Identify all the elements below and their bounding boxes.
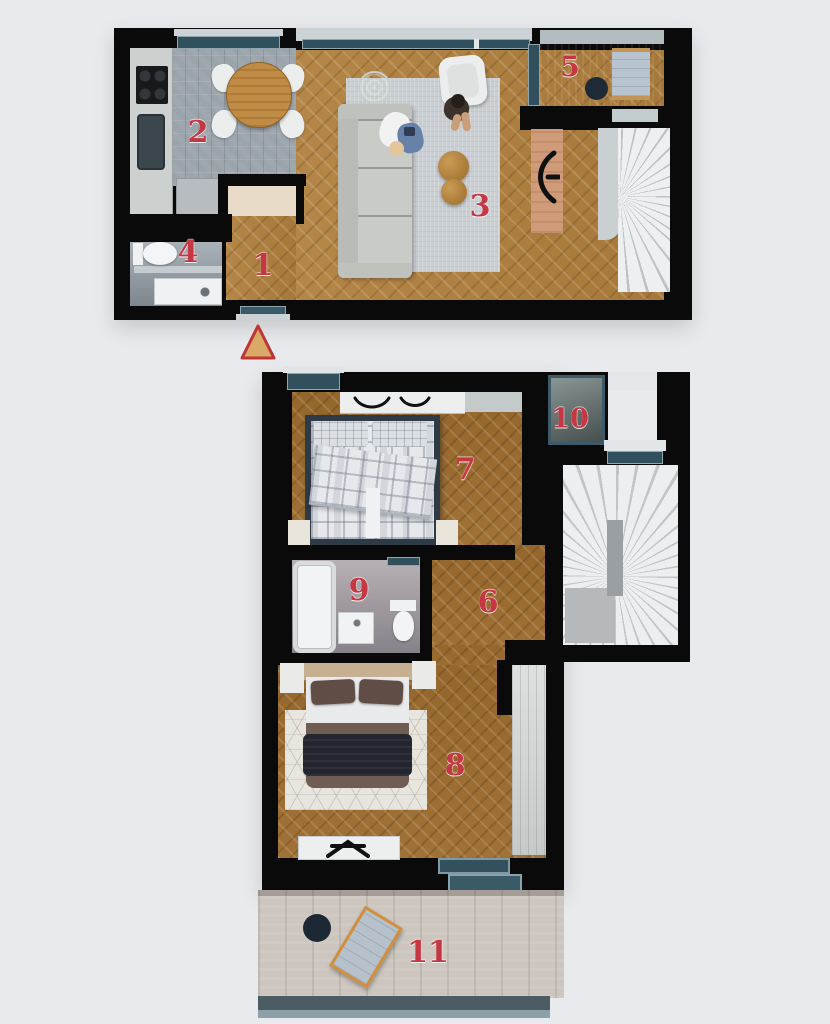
- window-mullion: [474, 39, 479, 49]
- bathroom-door-sill: [387, 557, 420, 566]
- stair-landing: [565, 588, 615, 643]
- terrace-table: [303, 914, 331, 942]
- armchair-seat: [446, 63, 479, 100]
- toilet-tank: [390, 600, 416, 611]
- bed-pillow: [372, 421, 427, 447]
- kitchen-sink: [137, 114, 165, 170]
- desk-chair-icon: [534, 148, 560, 206]
- bed-pillow: [358, 679, 403, 705]
- wall-segment: [420, 545, 432, 653]
- nightstand: [280, 663, 304, 693]
- person-standing-head: [451, 94, 465, 108]
- nightstand: [412, 661, 436, 689]
- room-number-7: 7: [455, 455, 476, 485]
- terrace-railing-base: [258, 1010, 550, 1018]
- stair-door: [612, 109, 658, 122]
- bathroom-sink: [338, 612, 374, 644]
- staircase-upper: [618, 128, 670, 292]
- nightstand: [288, 520, 310, 545]
- room-number-2: 2: [188, 118, 209, 148]
- floor-plan-canvas: 1 2 3 4 5: [0, 0, 830, 1024]
- balcony-door-panel: [438, 858, 510, 874]
- person-sitting-head: [389, 141, 404, 156]
- toilet: [143, 242, 177, 265]
- terrace-railing: [258, 996, 550, 1010]
- room-number-4: 4: [178, 238, 199, 268]
- nightstand: [436, 520, 458, 545]
- potted-plant: [358, 71, 391, 104]
- bedroom7-window-sill: [283, 366, 344, 373]
- entry-mat: [228, 184, 296, 216]
- hanger-icon: [398, 395, 432, 409]
- bed-pillow: [313, 421, 368, 447]
- room-5-balcony-window: [540, 30, 664, 44]
- room-number-9: 9: [349, 576, 370, 606]
- balcony-sliding-door: [528, 44, 540, 106]
- bedroom7-window: [287, 373, 340, 390]
- stair-window: [607, 451, 663, 464]
- wall-segment: [296, 174, 304, 224]
- coffee-table: [438, 151, 469, 182]
- dining-table: [226, 62, 292, 128]
- entrance-marker: [240, 323, 276, 361]
- room-number-5: 5: [560, 53, 579, 81]
- room-number-1: 1: [253, 251, 274, 281]
- entrance-door-sill: [236, 314, 290, 320]
- hanger-icon: [352, 395, 392, 411]
- stair-window-sill: [604, 440, 666, 451]
- wardrobe-shelf: [465, 392, 522, 412]
- toilet: [393, 611, 414, 641]
- sofa-armrest: [338, 263, 412, 278]
- stair-newel: [607, 520, 623, 596]
- washing-machine: [154, 278, 222, 305]
- living-window: [302, 39, 530, 49]
- room-number-3: 3: [470, 192, 491, 222]
- wall-segment: [218, 174, 306, 186]
- exterior-sill: [608, 372, 657, 390]
- wall-segment: [497, 660, 512, 715]
- bed-sheet: [366, 488, 380, 538]
- book: [404, 127, 415, 136]
- room-number-11: 11: [407, 938, 449, 968]
- room-number-10: 10: [551, 406, 589, 433]
- wardrobe-tall: [512, 665, 546, 855]
- coffee-table: [441, 179, 467, 205]
- understair-landing: [598, 128, 620, 240]
- bed-throw-blanket: [303, 734, 412, 776]
- room-number-6: 6: [478, 588, 499, 618]
- desk-chair-icon: [322, 836, 374, 862]
- bed-pillow: [310, 679, 355, 705]
- kitchen-window: [177, 36, 280, 49]
- lounge-chair: [612, 48, 650, 100]
- terrace-shadow: [258, 890, 564, 896]
- kitchen-window-sill: [174, 29, 283, 36]
- sofa-backrest: [338, 104, 358, 278]
- side-table: [585, 77, 608, 100]
- toilet-tank: [133, 243, 143, 265]
- bathtub: [293, 561, 336, 653]
- cooktop: [136, 66, 168, 104]
- room-number-8: 8: [445, 751, 466, 781]
